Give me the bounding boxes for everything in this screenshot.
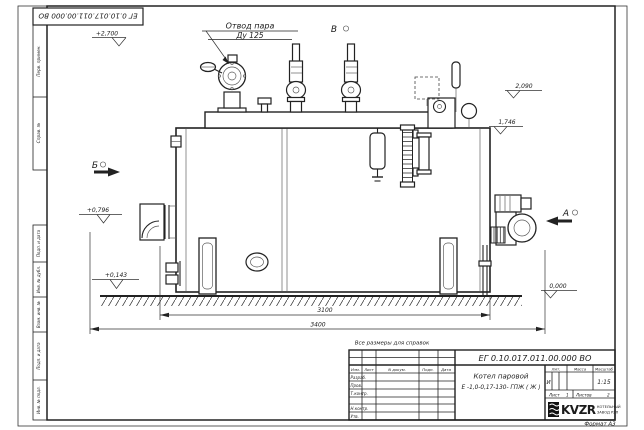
view-label-b: Б <box>92 161 120 177</box>
side-label-sprav-no: Справ. № <box>36 122 41 143</box>
doc-name-line1: Котел паровой <box>474 373 529 381</box>
side-label-inv-dubl: Инв. № дубл. <box>36 266 41 293</box>
callout-text-line1: Отвод пара <box>226 22 275 31</box>
dimension-inner: 3100 <box>160 307 490 317</box>
elevation-0143: +0,143 <box>92 272 139 289</box>
top-designation-stamp: ЕГ 0.10.017.011.00.000 ВО <box>33 8 143 25</box>
col-list: Лист <box>363 367 374 372</box>
boiler-side-view <box>100 44 536 306</box>
skid-left <box>199 238 216 294</box>
sheets-value: 2 <box>607 393 610 398</box>
view-label-v: В <box>331 25 349 35</box>
dimension-outer: 3400 <box>90 322 545 332</box>
callout-text-line2: Ду 125 <box>236 31 264 40</box>
view-a-text: А <box>562 209 569 219</box>
elevation-0796-text: +0,796 <box>87 207 109 214</box>
dimension-outer-text: 3400 <box>310 322 325 329</box>
drawing-canvas: ЕГ 0.10.017.011.00.000 ВО Перв. примен. … <box>0 0 644 430</box>
row-nkontr: Н.контр. <box>351 406 369 411</box>
view-v-text: В <box>331 25 337 35</box>
manhole <box>246 253 268 271</box>
ground-line <box>100 296 522 306</box>
elevation-0000-text: 0,000 <box>549 283 566 290</box>
reference-note: Все размеры для справок <box>355 341 430 347</box>
sheet-label: Лист <box>548 393 560 398</box>
safety-valve-1 <box>287 44 306 112</box>
side-label-inv-podl: Инв. № подл. <box>36 386 41 414</box>
steam-outlet-valve <box>201 55 247 112</box>
col-ndokum: N докум. <box>388 367 406 372</box>
format-label: Формат А3 <box>584 422 616 428</box>
company-line2: ЗАВОД РЭП <box>597 411 619 415</box>
scale-header: Масштаб <box>595 367 614 372</box>
elevation-2700: +2,700 <box>92 31 126 47</box>
platform-stub <box>258 98 271 112</box>
view-label-a: А <box>546 209 578 226</box>
side-label-vzam-inv: Взам. инв. № <box>36 301 41 328</box>
side-label-podp-data-1: Подп. и дата <box>36 229 41 257</box>
side-label-perv-primen: Перв. примен. <box>36 45 41 76</box>
dimension-inner-text: 3100 <box>317 307 332 314</box>
elevation-0796: +0,796 <box>79 207 122 223</box>
economizer-elbow <box>140 204 176 240</box>
lit-value: И <box>546 380 550 386</box>
row-razrab: Разраб. <box>351 375 367 380</box>
titleblock-designation: ЕГ 0.10.017.011.00.000 ВО <box>479 353 592 363</box>
elevation-2700-text: +2,700 <box>96 31 118 38</box>
gauge-glass <box>403 130 413 182</box>
drawing-sheet: ЕГ 0.10.017.011.00.000 ВО Перв. примен. … <box>0 0 644 430</box>
siphon-loop <box>462 104 477 129</box>
col-data: Дата <box>440 367 452 372</box>
elevation-2090-text: 2,090 <box>515 83 532 90</box>
top-designation-text: ЕГ 0.10.017.011.00.000 ВО <box>38 12 137 21</box>
elevation-2090: 2,090 <box>505 83 542 98</box>
burner-grill <box>491 227 505 243</box>
col-podp: Подп. <box>422 367 434 372</box>
level-vessel <box>370 133 385 169</box>
elevation-1746: 1,746 <box>489 119 523 134</box>
elevation-1746-text: 1,746 <box>498 119 515 126</box>
elevation-0000: 0,000 <box>541 283 577 298</box>
row-prov: Пров. <box>351 383 363 388</box>
burner-motor <box>495 195 521 212</box>
left-stamp-columns: Перв. примен. Справ. № Подп. и дата Инв.… <box>33 25 47 420</box>
logo-text: KVZR <box>561 403 596 417</box>
company-line1: КОТЕЛЬНЫЙ <box>597 404 621 409</box>
feedwater-nozzle <box>171 136 181 147</box>
mass-header: Масса <box>574 367 587 372</box>
view-b-text: Б <box>92 161 98 171</box>
sheets-label: Листов <box>575 393 592 398</box>
burner-nose <box>508 214 536 242</box>
callout-steam-outlet: Отвод пара Ду 125 <box>202 22 298 65</box>
title-block: ЕГ 0.10.017.011.00.000 ВО Изм. Лист N до… <box>349 350 621 420</box>
callout-leader-line <box>206 31 228 62</box>
doc-name-line2: Е -1,0-0,17-130- ГПЖ ( Ж ) <box>461 385 540 391</box>
gauge-mount-plate <box>428 98 455 128</box>
company-logo: KVZR КОТЕЛЬНЫЙ ЗАВОД РЭП <box>548 402 621 417</box>
safety-valve-2 <box>342 44 361 112</box>
row-utv: Утв. <box>351 414 359 419</box>
elevation-0143-text: +0,143 <box>105 272 127 279</box>
water-column <box>419 137 429 170</box>
scale-value: 1:15 <box>597 379 611 386</box>
col-izm: Изм. <box>351 367 360 372</box>
row-tkontr: Т.контр. <box>351 391 368 396</box>
side-label-podp-data-2: Подп. и дата <box>36 342 41 370</box>
lit-header: Лит. <box>551 367 561 372</box>
sheet-value: 1 <box>566 393 569 398</box>
skid-right <box>440 238 457 294</box>
